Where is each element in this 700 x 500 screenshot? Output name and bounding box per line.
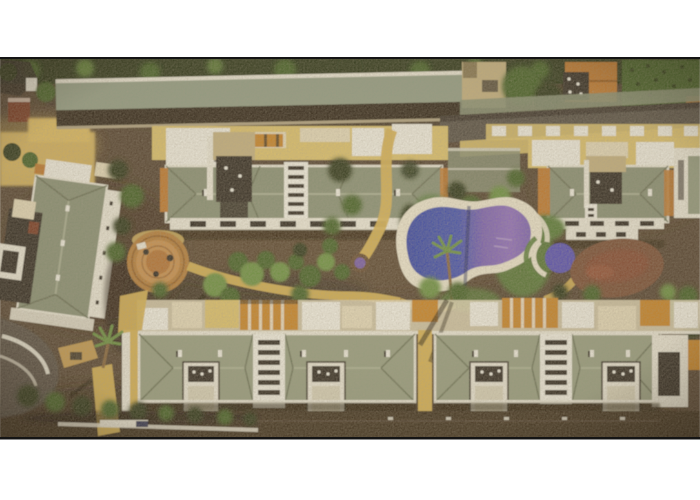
vignette bbox=[0, 58, 700, 439]
photo-top-border bbox=[0, 57, 700, 59]
photo-content bbox=[0, 58, 700, 450]
photo-bottom-border bbox=[0, 437, 700, 440]
aerial-photo-svg bbox=[0, 0, 700, 500]
aerial-photo: Aerial satellite photograph of a holiday… bbox=[0, 0, 700, 500]
